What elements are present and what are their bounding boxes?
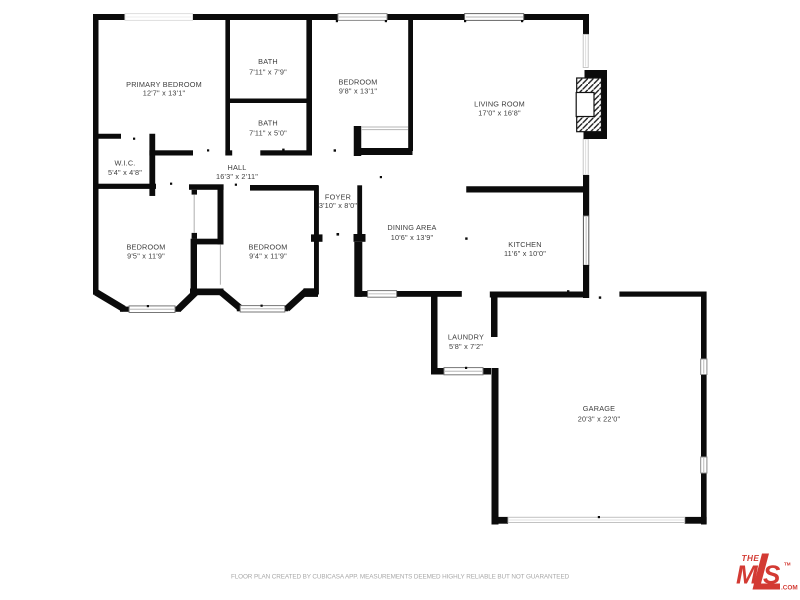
svg-text:DINING AREA: DINING AREA: [387, 223, 436, 232]
svg-text:5'4" x 4'8": 5'4" x 4'8": [108, 168, 142, 177]
svg-text:BATH: BATH: [258, 119, 278, 128]
svg-text:7'11" x 7'9": 7'11" x 7'9": [249, 68, 287, 77]
svg-text:BEDROOM: BEDROOM: [338, 78, 377, 87]
svg-text:7'11" x 5'0": 7'11" x 5'0": [249, 129, 287, 138]
svg-text:LIVING ROOM: LIVING ROOM: [474, 99, 525, 108]
svg-text:GARAGE: GARAGE: [583, 404, 615, 413]
svg-text:10'6" x 13'9": 10'6" x 13'9": [391, 233, 434, 242]
svg-text:12'7" x 13'1": 12'7" x 13'1": [143, 88, 186, 97]
svg-text:20'3" x 22'0": 20'3" x 22'0": [578, 415, 621, 424]
svg-text:TM: TM: [784, 562, 791, 567]
svg-text:HALL: HALL: [227, 163, 246, 172]
svg-text:3'10" x 8'0": 3'10" x 8'0": [319, 201, 358, 210]
svg-text:17'0" x 16'8": 17'0" x 16'8": [478, 109, 521, 118]
svg-text:9'8" x 13'1": 9'8" x 13'1": [339, 87, 378, 96]
svg-text:11'6" x 10'0": 11'6" x 10'0": [504, 249, 546, 258]
svg-text:9'4" x 11'9": 9'4" x 11'9": [249, 252, 287, 261]
svg-text:S: S: [763, 560, 781, 590]
svg-text:.COM: .COM: [781, 585, 798, 592]
svg-text:BEDROOM: BEDROOM: [248, 243, 287, 252]
svg-text:BEDROOM: BEDROOM: [126, 243, 165, 252]
svg-text:9'5" x 11'9": 9'5" x 11'9": [127, 252, 165, 261]
svg-text:FOYER: FOYER: [325, 192, 351, 201]
svg-text:5'8" x 7'2": 5'8" x 7'2": [449, 342, 483, 351]
svg-text:LAUNDRY: LAUNDRY: [448, 333, 484, 342]
svg-text:16'3" x 2'11": 16'3" x 2'11": [216, 172, 258, 181]
svg-text:W.I.C.: W.I.C.: [114, 159, 135, 168]
svg-text:FLOOR PLAN CREATED BY CUBICASA: FLOOR PLAN CREATED BY CUBICASA APP. MEAS…: [231, 574, 570, 581]
svg-text:BATH: BATH: [258, 57, 278, 66]
